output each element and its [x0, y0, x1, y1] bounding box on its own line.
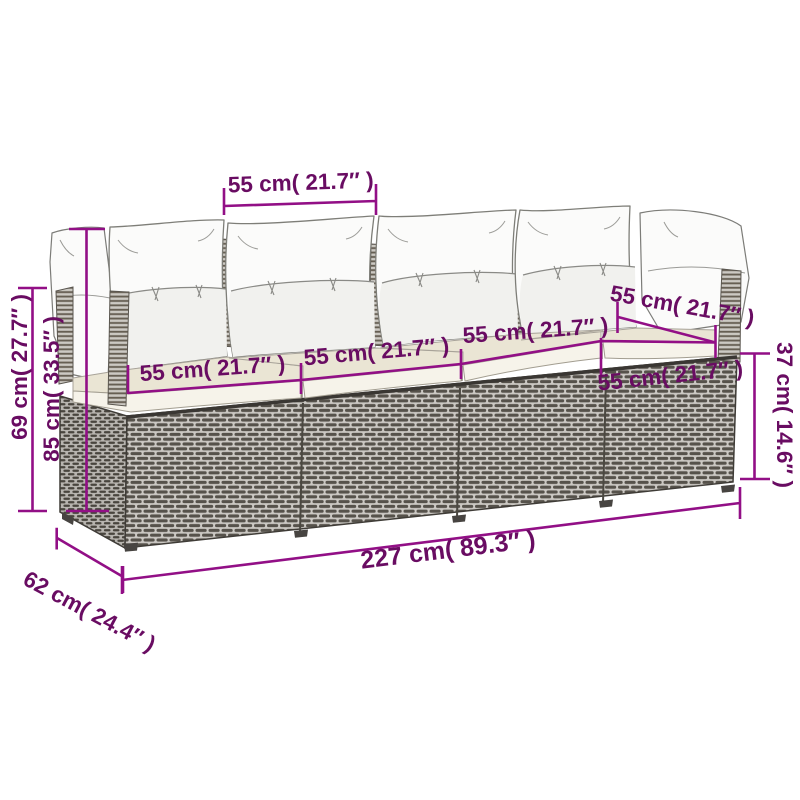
- svg-text:37 cm( 14.6″ ): 37 cm( 14.6″ ): [772, 342, 797, 488]
- svg-text:55 cm( 21.7″ ): 55 cm( 21.7″ ): [227, 167, 374, 197]
- svg-text:69 cm( 27.7″ ): 69 cm( 27.7″ ): [7, 294, 32, 440]
- svg-text:85 cm( 33.5″ ): 85 cm( 33.5″ ): [39, 316, 64, 462]
